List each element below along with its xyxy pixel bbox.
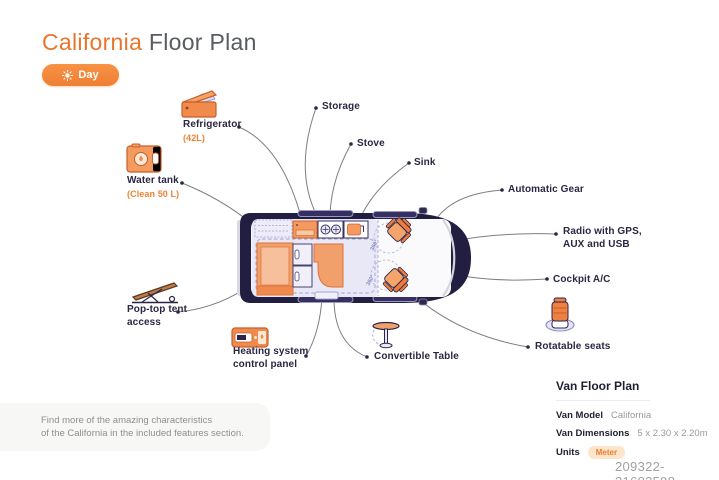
sun-icon: [62, 70, 73, 81]
stove-unit: [318, 221, 343, 238]
info-panel-divider: [556, 400, 650, 401]
page-title: California Floor Plan: [42, 29, 257, 56]
callout-sink: Sink: [414, 157, 436, 170]
callout-radio: Radio with GPS, AUX and USB: [563, 226, 655, 251]
page-root: California Floor Plan Day: [0, 0, 719, 480]
rotatable-seat-icon: [543, 296, 577, 334]
callout-pop-top: Pop-top tent access: [127, 304, 189, 329]
refrigerator-sublabel: (42L): [183, 133, 241, 144]
refrigerator-label: Refrigerator: [183, 119, 241, 132]
watermark-id: 209322-21683598: [615, 459, 719, 480]
bed: [257, 243, 293, 295]
sink-unit: [344, 221, 368, 238]
callout-refrigerator: Refrigerator (42L): [183, 119, 241, 144]
units-badge[interactable]: Meter: [588, 446, 625, 459]
info-row-value: 5 x 2.30 x 2.20m: [637, 428, 707, 439]
convertible-table-icon: [366, 318, 402, 350]
callout-convertible-table: Convertible Table: [374, 351, 459, 364]
info-row-van-model: Van Model California: [556, 410, 716, 421]
day-toggle-button[interactable]: Day: [42, 64, 119, 86]
mirror-bottom: [419, 299, 427, 305]
title-highlight: California: [42, 29, 142, 55]
info-row-label: Units: [556, 447, 580, 458]
callout-water-tank: Water tank (Clean 50 L): [127, 175, 179, 200]
water-tank-sublabel: (Clean 50 L): [127, 189, 179, 200]
footnote-line1: Find more of the amazing characteristics: [41, 414, 270, 428]
callout-automatic-gear: Automatic Gear: [508, 184, 584, 197]
info-panel: Van Floor Plan Van Model California Van …: [556, 379, 716, 466]
heater-drawer: [315, 292, 338, 299]
fridge-unit: [293, 221, 317, 238]
refrigerator-icon: [178, 87, 220, 120]
day-toggle-label: Day: [78, 69, 98, 81]
footnote-box: Find more of the amazing characteristics…: [0, 403, 270, 451]
water-tank-icon: [124, 143, 164, 174]
callout-storage: Storage: [322, 101, 360, 114]
heating-panel-icon: [231, 327, 269, 348]
line-storage: [305, 108, 317, 216]
callout-stove: Stove: [357, 138, 385, 151]
van-floor-plan-diagram: 360° 360°: [237, 206, 477, 306]
info-row-label: Van Model: [556, 410, 603, 421]
info-row-van-dimensions: Van Dimensions 5 x 2.30 x 2.20m: [556, 428, 716, 439]
info-row-units: Units Meter: [556, 446, 716, 459]
callout-rotatable-seats: Rotatable seats: [535, 341, 610, 354]
footnote-line2: of the California in the included featur…: [41, 427, 270, 441]
title-rest: Floor Plan: [142, 29, 257, 55]
callout-heating-system: Heating system control panel: [233, 346, 318, 371]
info-panel-heading: Van Floor Plan: [556, 379, 716, 393]
callout-cockpit-ac: Cockpit A/C: [553, 274, 610, 287]
info-row-label: Van Dimensions: [556, 428, 629, 439]
pop-top-icon: [128, 277, 182, 306]
water-tank-label: Water tank: [127, 175, 179, 188]
mirror-top: [419, 208, 427, 214]
info-row-value: California: [611, 410, 651, 421]
storage-counter: [255, 220, 292, 237]
